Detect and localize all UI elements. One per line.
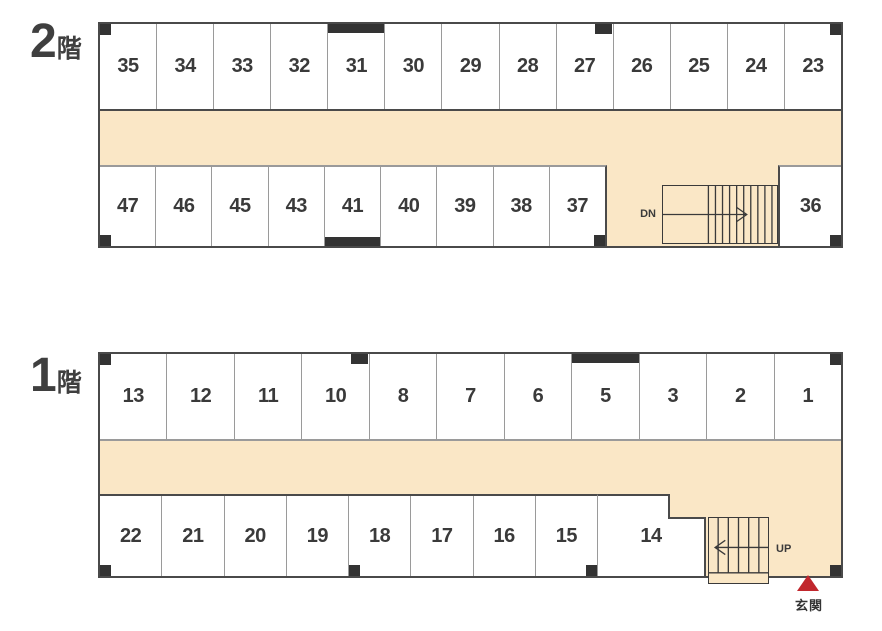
- unit-number: 7: [465, 385, 476, 408]
- unit-number: 33: [232, 55, 253, 78]
- stairs-up-label: UP: [776, 542, 816, 557]
- door-marker: [595, 24, 612, 34]
- unit-41: 41: [325, 167, 381, 246]
- floor-1-corridor: [100, 439, 841, 494]
- unit-number: 16: [494, 525, 515, 548]
- pillar-marker: [586, 565, 597, 576]
- unit-number: 36: [800, 195, 821, 218]
- floor-1-top-row: 131211108765321: [100, 354, 841, 439]
- unit-13: 13: [100, 354, 167, 439]
- unit-40: 40: [381, 167, 437, 246]
- unit-23: 23: [785, 24, 841, 109]
- stairs-down-label: DN: [590, 207, 656, 222]
- unit-number: 23: [802, 55, 823, 78]
- unit-29: 29: [442, 24, 499, 109]
- unit-7: 7: [437, 354, 504, 439]
- unit-number: 2: [735, 385, 746, 408]
- floor-2-plan: 35343332313029282726252423 4746454341403…: [98, 22, 843, 248]
- pillar-marker: [100, 354, 111, 365]
- unit-number: 46: [173, 195, 194, 218]
- unit-26: 26: [614, 24, 671, 109]
- shutter-bar-marker: [325, 237, 380, 246]
- unit-30: 30: [385, 24, 442, 109]
- unit-14: 14: [598, 494, 706, 576]
- unit-number: 29: [460, 55, 481, 78]
- unit-1: 1: [775, 354, 841, 439]
- unit-number: 13: [123, 385, 144, 408]
- floor-2-label: 2 階: [30, 18, 82, 66]
- pillar-marker: [349, 565, 360, 576]
- unit-12: 12: [167, 354, 234, 439]
- unit-number: 20: [245, 525, 266, 548]
- unit-number: 30: [403, 55, 424, 78]
- unit-39: 39: [437, 167, 493, 246]
- unit-15: 15: [536, 496, 597, 576]
- unit-number: 3: [668, 385, 679, 408]
- unit-number: 43: [286, 195, 307, 218]
- unit-2: 2: [707, 354, 774, 439]
- unit-5: 5: [572, 354, 639, 439]
- unit-3: 3: [640, 354, 707, 439]
- unit-number: 19: [307, 525, 328, 548]
- unit-45: 45: [212, 167, 268, 246]
- pillar-marker: [830, 235, 841, 246]
- unit-27: 27: [557, 24, 614, 109]
- floor-map-page: 2 階 35343332313029282726252423 474645434…: [0, 0, 882, 631]
- shutter-bar-marker: [572, 354, 638, 363]
- unit-number: 24: [745, 55, 766, 78]
- pillar-marker: [100, 565, 111, 576]
- unit-17: 17: [411, 496, 473, 576]
- unit-35: 35: [100, 24, 157, 109]
- floor-1-kanji: 階: [57, 371, 82, 396]
- unit-25: 25: [671, 24, 728, 109]
- pillar-marker: [100, 24, 111, 35]
- entrance-arrow-icon: [797, 575, 819, 591]
- unit-number: 17: [431, 525, 452, 548]
- unit-46: 46: [156, 167, 212, 246]
- unit-24: 24: [728, 24, 785, 109]
- unit-number: 6: [533, 385, 544, 408]
- unit-38: 38: [494, 167, 550, 246]
- unit-number: 32: [289, 55, 310, 78]
- floor-2-bottom-row: 474645434140393837: [100, 165, 607, 246]
- unit-number: 21: [182, 525, 203, 548]
- unit-6: 6: [505, 354, 572, 439]
- unit-number: 22: [120, 525, 141, 548]
- unit-32: 32: [271, 24, 328, 109]
- pillar-marker: [100, 235, 111, 246]
- unit-34: 34: [157, 24, 214, 109]
- unit-number: 40: [398, 195, 419, 218]
- unit-number: 35: [117, 55, 138, 78]
- floor-2-kanji: 階: [57, 37, 82, 62]
- unit-number: 8: [398, 385, 409, 408]
- floor-1-number: 1: [30, 352, 55, 400]
- entrance-label: 玄関: [781, 595, 837, 614]
- door-marker: [351, 354, 368, 364]
- stairs-treads-and-arrow: [663, 186, 777, 243]
- unit-18: 18: [349, 496, 411, 576]
- unit-number: 5: [600, 385, 611, 408]
- unit-22: 22: [100, 496, 162, 576]
- floor-1-plan: 131211108765321 2221201918171615 14: [98, 352, 843, 578]
- unit-number: 38: [511, 195, 532, 218]
- stairs-treads-and-arrow: [709, 518, 768, 583]
- unit-28: 28: [500, 24, 557, 109]
- unit-43: 43: [269, 167, 325, 246]
- unit-19: 19: [287, 496, 349, 576]
- pillar-marker: [830, 354, 841, 365]
- pillar-marker: [594, 235, 605, 246]
- unit-number: 12: [190, 385, 211, 408]
- unit-number: 25: [688, 55, 709, 78]
- unit-number: 39: [454, 195, 475, 218]
- unit-20: 20: [225, 496, 287, 576]
- floor-1-stairs: [708, 517, 769, 584]
- unit-number: 1: [802, 385, 813, 408]
- corridor-notch: [668, 494, 706, 519]
- unit-21: 21: [162, 496, 224, 576]
- unit-number: 18: [369, 525, 390, 548]
- pillar-marker: [830, 24, 841, 35]
- floor-2-corridor: [100, 109, 841, 165]
- unit-number: 28: [517, 55, 538, 78]
- unit-33: 33: [214, 24, 271, 109]
- unit-number: 27: [574, 55, 595, 78]
- floor-1-bottom-row: 2221201918171615: [100, 494, 598, 576]
- unit-number: 26: [631, 55, 652, 78]
- unit-number: 10: [325, 385, 346, 408]
- unit-16: 16: [474, 496, 536, 576]
- floor-2-stairs: [662, 185, 778, 244]
- unit-number: 15: [556, 525, 577, 548]
- unit-number: 47: [117, 195, 138, 218]
- unit-number: 11: [258, 385, 278, 408]
- unit-number: 37: [567, 195, 588, 218]
- unit-number: 31: [346, 55, 367, 78]
- floor-2-number: 2: [30, 18, 55, 66]
- pillar-marker: [830, 565, 841, 576]
- floor-2-top-row: 35343332313029282726252423: [100, 24, 841, 109]
- unit-47: 47: [100, 167, 156, 246]
- unit-11: 11: [235, 354, 302, 439]
- floor-1-label: 1 階: [30, 352, 82, 400]
- unit-number: 45: [229, 195, 250, 218]
- unit-31: 31: [328, 24, 385, 109]
- shutter-bar-marker: [328, 24, 384, 33]
- unit-number: 34: [174, 55, 195, 78]
- unit-8: 8: [370, 354, 437, 439]
- unit-number: 41: [342, 195, 363, 218]
- unit-36: 36: [778, 165, 841, 246]
- unit-number: 14: [640, 525, 661, 548]
- unit-10: 10: [302, 354, 369, 439]
